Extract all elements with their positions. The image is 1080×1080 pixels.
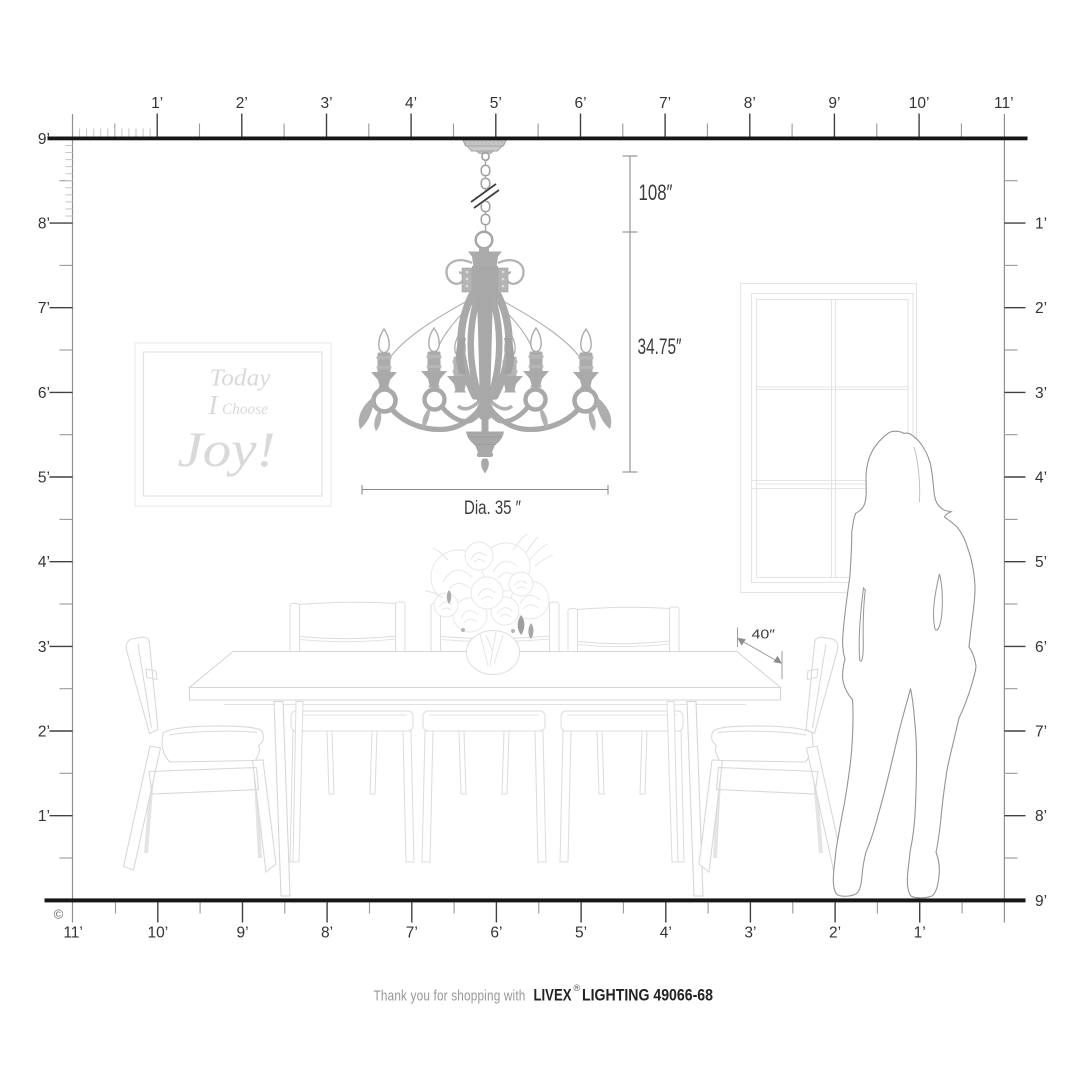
svg-text:5’: 5’ bbox=[575, 925, 587, 942]
svg-text:9’: 9’ bbox=[38, 131, 50, 148]
svg-text:Choose: Choose bbox=[222, 401, 268, 418]
svg-text:10’: 10’ bbox=[147, 925, 168, 942]
svg-text:4’: 4’ bbox=[1035, 470, 1047, 487]
svg-text:Joy!: Joy! bbox=[178, 421, 276, 477]
svg-text:10’: 10’ bbox=[909, 95, 930, 112]
svg-text:2’: 2’ bbox=[236, 95, 248, 112]
svg-text:1’: 1’ bbox=[914, 925, 926, 942]
svg-text:108″: 108″ bbox=[639, 180, 673, 205]
svg-text:4’: 4’ bbox=[660, 925, 672, 942]
svg-text:7’: 7’ bbox=[1035, 724, 1047, 741]
svg-text:9’: 9’ bbox=[1035, 893, 1047, 910]
svg-text:2’: 2’ bbox=[1035, 300, 1047, 317]
svg-text:5’: 5’ bbox=[1035, 554, 1047, 571]
svg-text:3’: 3’ bbox=[320, 95, 332, 112]
svg-text:2’: 2’ bbox=[829, 925, 841, 942]
svg-text:3’: 3’ bbox=[38, 639, 50, 656]
svg-text:3’: 3’ bbox=[1035, 385, 1047, 402]
svg-text:34.75″: 34.75″ bbox=[638, 334, 682, 359]
svg-text:Dia. 35 ″: Dia. 35 ″ bbox=[464, 498, 521, 519]
svg-text:1’: 1’ bbox=[1035, 216, 1047, 233]
svg-text:7’: 7’ bbox=[406, 925, 418, 942]
svg-text:2’: 2’ bbox=[38, 724, 50, 741]
svg-text:5’: 5’ bbox=[490, 95, 502, 112]
svg-text:Today: Today bbox=[210, 366, 271, 392]
svg-text:9’: 9’ bbox=[828, 95, 840, 112]
svg-text:Thank you for shopping with: Thank you for shopping with bbox=[374, 988, 526, 1005]
svg-text:6’: 6’ bbox=[490, 925, 502, 942]
svg-text:1’: 1’ bbox=[151, 95, 163, 112]
svg-text:8’: 8’ bbox=[1035, 808, 1047, 825]
svg-text:8’: 8’ bbox=[38, 216, 50, 233]
svg-text:LIVEX: LIVEX bbox=[534, 987, 572, 1005]
svg-text:©: © bbox=[54, 907, 64, 922]
svg-text:11’: 11’ bbox=[994, 95, 1014, 112]
svg-text:6’: 6’ bbox=[574, 95, 586, 112]
svg-text:®: ® bbox=[574, 983, 581, 993]
svg-text:11’: 11’ bbox=[63, 925, 83, 942]
svg-text:8’: 8’ bbox=[744, 95, 756, 112]
svg-text:40″: 40″ bbox=[752, 628, 776, 642]
svg-text:6’: 6’ bbox=[1035, 639, 1047, 656]
svg-text:1’: 1’ bbox=[38, 808, 50, 825]
svg-text:7’: 7’ bbox=[38, 300, 50, 317]
svg-text:LIGHTING 49066-68: LIGHTING 49066-68 bbox=[582, 987, 713, 1005]
svg-text:4’: 4’ bbox=[405, 95, 417, 112]
svg-text:9’: 9’ bbox=[236, 925, 248, 942]
svg-text:7’: 7’ bbox=[659, 95, 671, 112]
svg-text:4’: 4’ bbox=[38, 554, 50, 571]
svg-text:3’: 3’ bbox=[744, 925, 756, 942]
svg-text:5’: 5’ bbox=[38, 470, 50, 487]
svg-text:6’: 6’ bbox=[38, 385, 50, 402]
svg-text:8’: 8’ bbox=[321, 925, 333, 942]
